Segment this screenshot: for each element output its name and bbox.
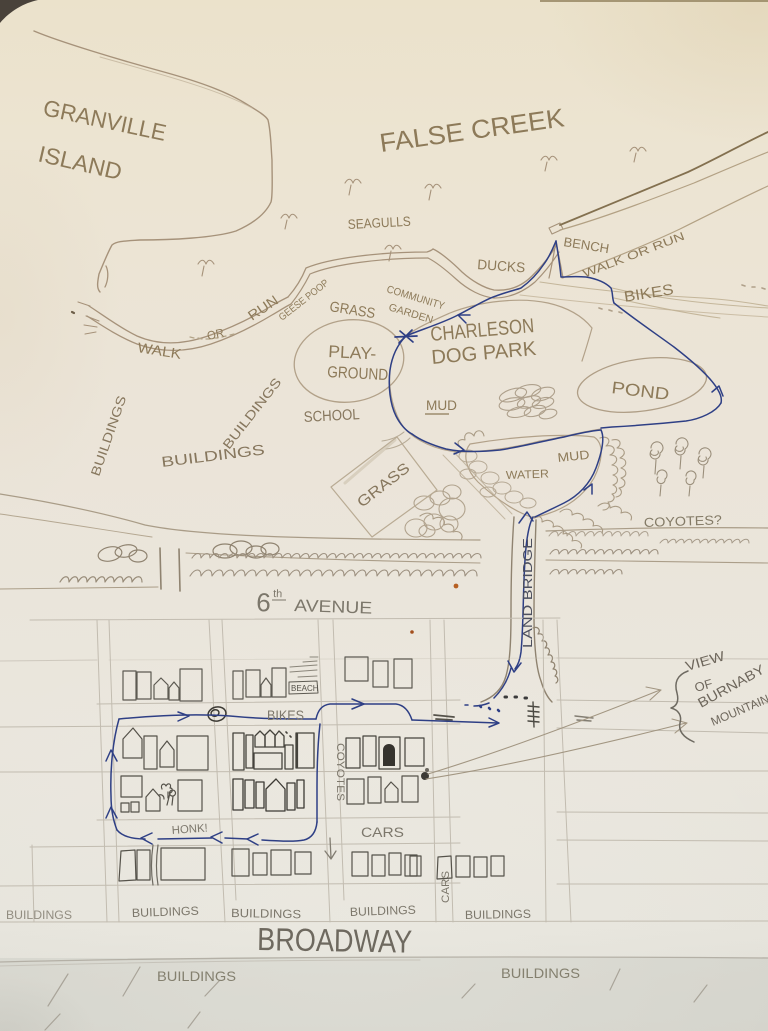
svg-text:BEACH: BEACH — [291, 684, 319, 693]
svg-text:SCHOOL: SCHOOL — [303, 406, 360, 426]
svg-text:MUD: MUD — [426, 398, 457, 413]
svg-text:AVENUE: AVENUE — [294, 596, 373, 618]
svg-text:LAND BRIDGE: LAND BRIDGE — [521, 538, 535, 648]
svg-text:BUILDINGS: BUILDINGS — [501, 965, 580, 981]
svg-text:BUILDINGS: BUILDINGS — [231, 906, 301, 921]
svg-text:BUILDINGS: BUILDINGS — [350, 903, 416, 919]
svg-text:COYOTES?: COYOTES? — [644, 512, 722, 530]
svg-text:PLAY-: PLAY- — [328, 342, 377, 363]
svg-text:HONK!: HONK! — [171, 823, 208, 837]
svg-text:CARS: CARS — [361, 825, 404, 840]
svg-text:BROADWAY: BROADWAY — [257, 921, 413, 960]
svg-text:DUCKS: DUCKS — [477, 256, 526, 275]
svg-text:CARS: CARS — [440, 871, 452, 903]
svg-text:6: 6 — [256, 587, 272, 617]
svg-text:COYOTES: COYOTES — [334, 743, 346, 801]
svg-text:BUILDINGS: BUILDINGS — [6, 908, 72, 922]
svg-text:BIKES: BIKES — [267, 707, 304, 723]
svg-text:BUILDINGS: BUILDINGS — [465, 907, 531, 922]
svg-text:BUILDINGS: BUILDINGS — [157, 968, 236, 984]
svg-text:BUILDINGS: BUILDINGS — [132, 904, 199, 920]
svg-text:th: th — [273, 588, 283, 600]
svg-text:WATER: WATER — [506, 469, 549, 482]
svg-text:GROUND: GROUND — [327, 364, 389, 384]
